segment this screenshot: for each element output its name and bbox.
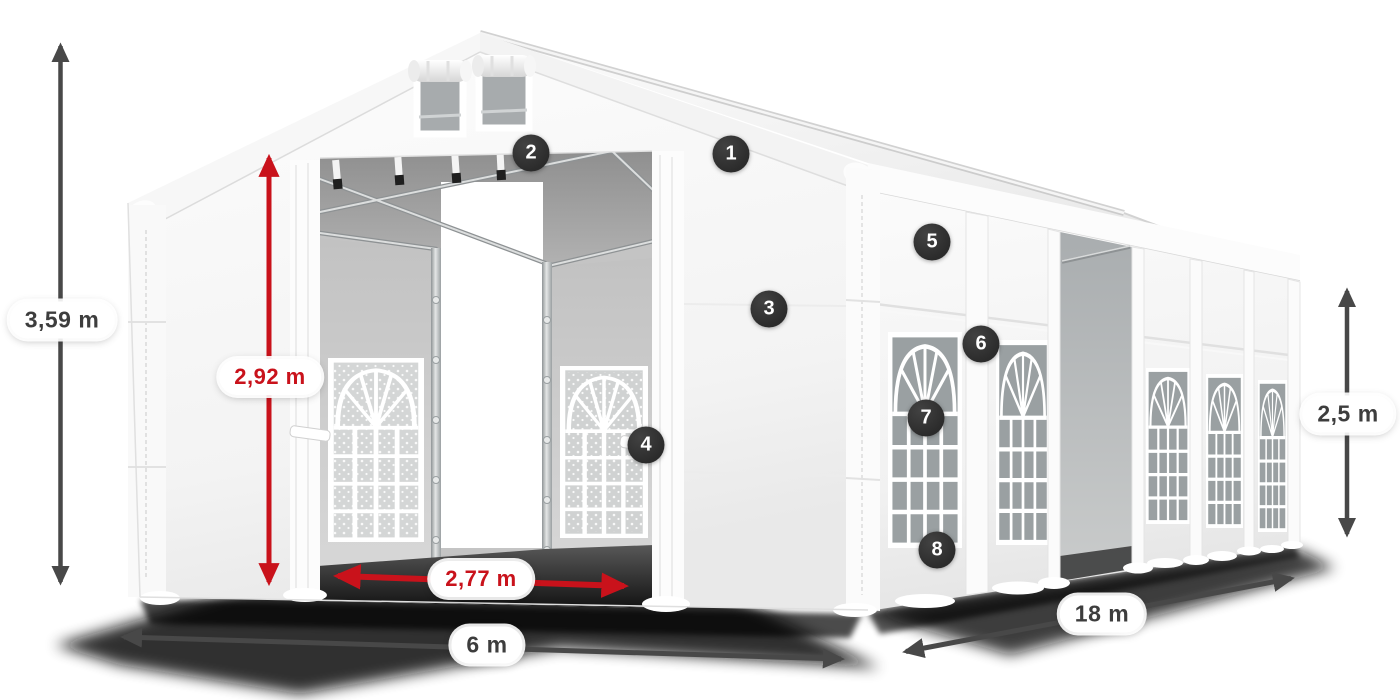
callout-badge-7: 7	[908, 400, 945, 437]
entrance-width-label: 2,77 m	[430, 561, 532, 597]
side-length-label: 18 m	[1060, 596, 1144, 633]
vent-roll	[408, 60, 472, 82]
front-width-label: 6 m	[451, 627, 522, 664]
entrance-interior	[318, 150, 654, 608]
side-wall-height-label: 2,5 m	[1302, 396, 1393, 433]
total-height-label: 3,59 m	[10, 302, 115, 339]
tent-dimension-diagram: 3,59 m 2,92 m 2,77 m 6 m 18 m 2,5 m 1 2 …	[0, 0, 1400, 700]
entrance-height-label: 2,92 m	[219, 359, 321, 395]
callout-badge-2: 2	[513, 135, 550, 172]
tent-illustration	[0, 0, 1400, 700]
side-doorway	[1060, 232, 1132, 581]
callout-badge-8: 8	[919, 532, 956, 569]
callout-badge-3: 3	[751, 291, 788, 328]
callout-badge-1: 1	[713, 136, 750, 173]
callout-badge-6: 6	[963, 326, 1000, 363]
vent-roll	[472, 55, 536, 77]
inner-door-window	[331, 360, 421, 539]
callout-badge-4: 4	[628, 427, 665, 464]
callout-badge-5: 5	[914, 224, 951, 261]
